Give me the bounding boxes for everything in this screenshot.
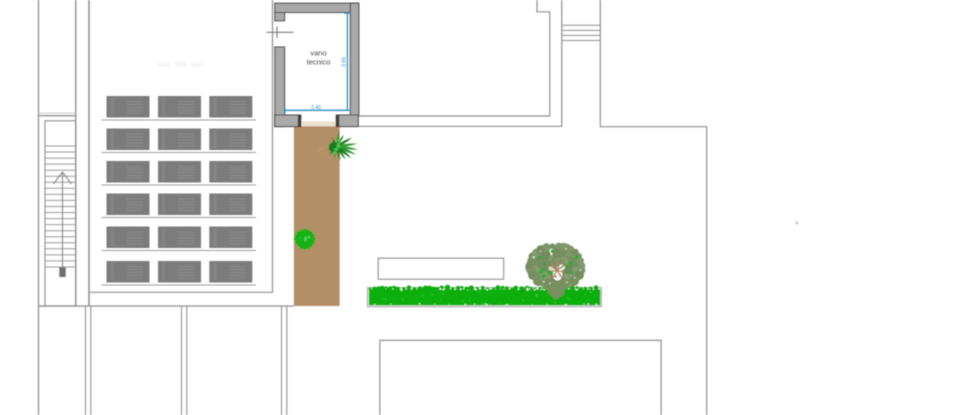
svg-text:3.65: 3.65 [342,57,348,67]
svg-text:tecnico: tecnico [307,58,331,67]
svg-text:vano: vano [310,49,326,58]
svg-text:2.40: 2.40 [311,105,321,111]
